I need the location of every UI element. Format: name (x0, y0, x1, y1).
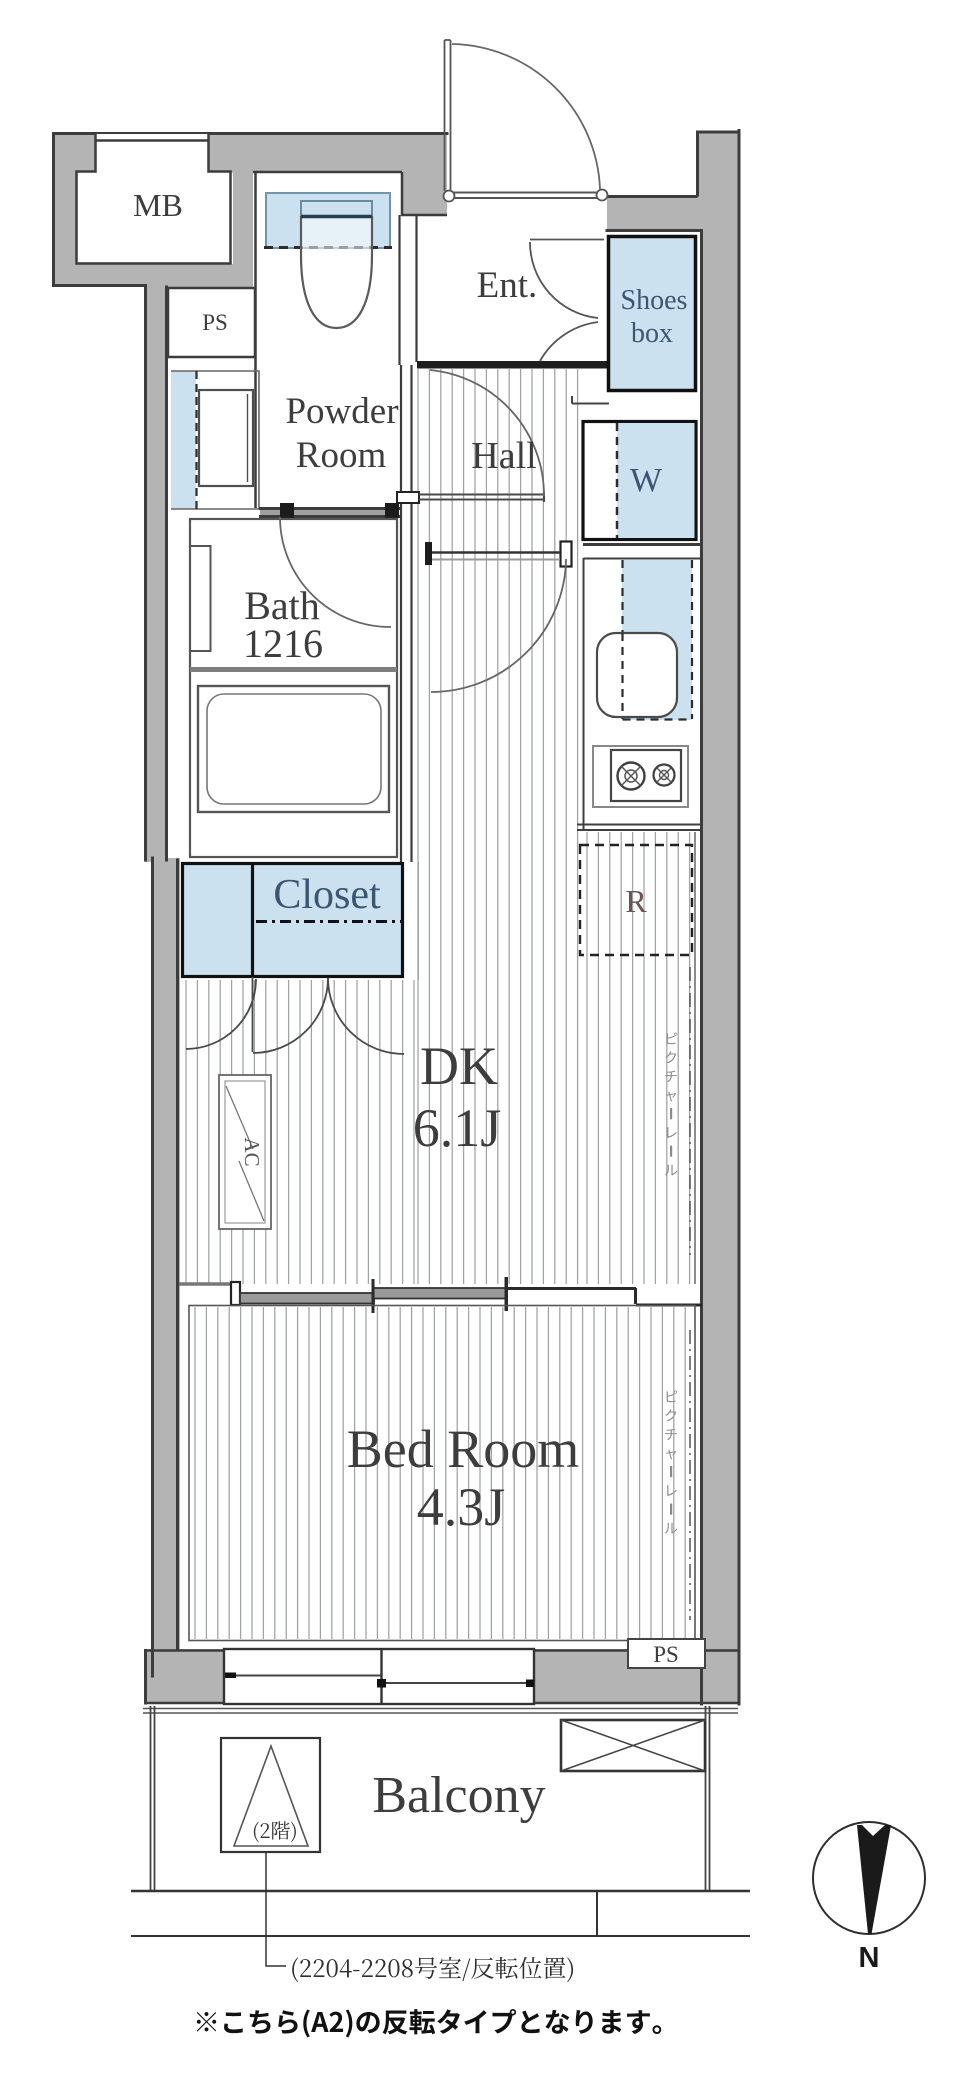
svg-text:PS: PS (202, 310, 228, 335)
svg-text:4.3J: 4.3J (417, 1477, 506, 1537)
svg-text:MB: MB (133, 187, 183, 223)
svg-text:PS: PS (653, 1642, 679, 1667)
svg-text:Closet: Closet (273, 872, 381, 918)
svg-text:R: R (625, 883, 647, 919)
svg-text:W: W (630, 462, 663, 499)
svg-text:Powder: Powder (285, 391, 398, 432)
svg-text:6.1J: 6.1J (413, 1098, 502, 1158)
svg-text:Shoes: Shoes (621, 285, 688, 316)
svg-text:Hall: Hall (471, 435, 536, 477)
svg-text:Balcony: Balcony (372, 1767, 545, 1824)
svg-text:Bed Room: Bed Room (347, 1419, 580, 1479)
svg-text:1216: 1216 (243, 621, 323, 666)
svg-text:DK: DK (420, 1036, 498, 1096)
svg-text:box: box (631, 318, 673, 349)
svg-text:AC: AC (240, 1137, 264, 1166)
svg-text:N: N (859, 1942, 880, 1974)
svg-text:Ent.: Ent. (477, 265, 538, 306)
svg-text:Room: Room (296, 435, 387, 476)
